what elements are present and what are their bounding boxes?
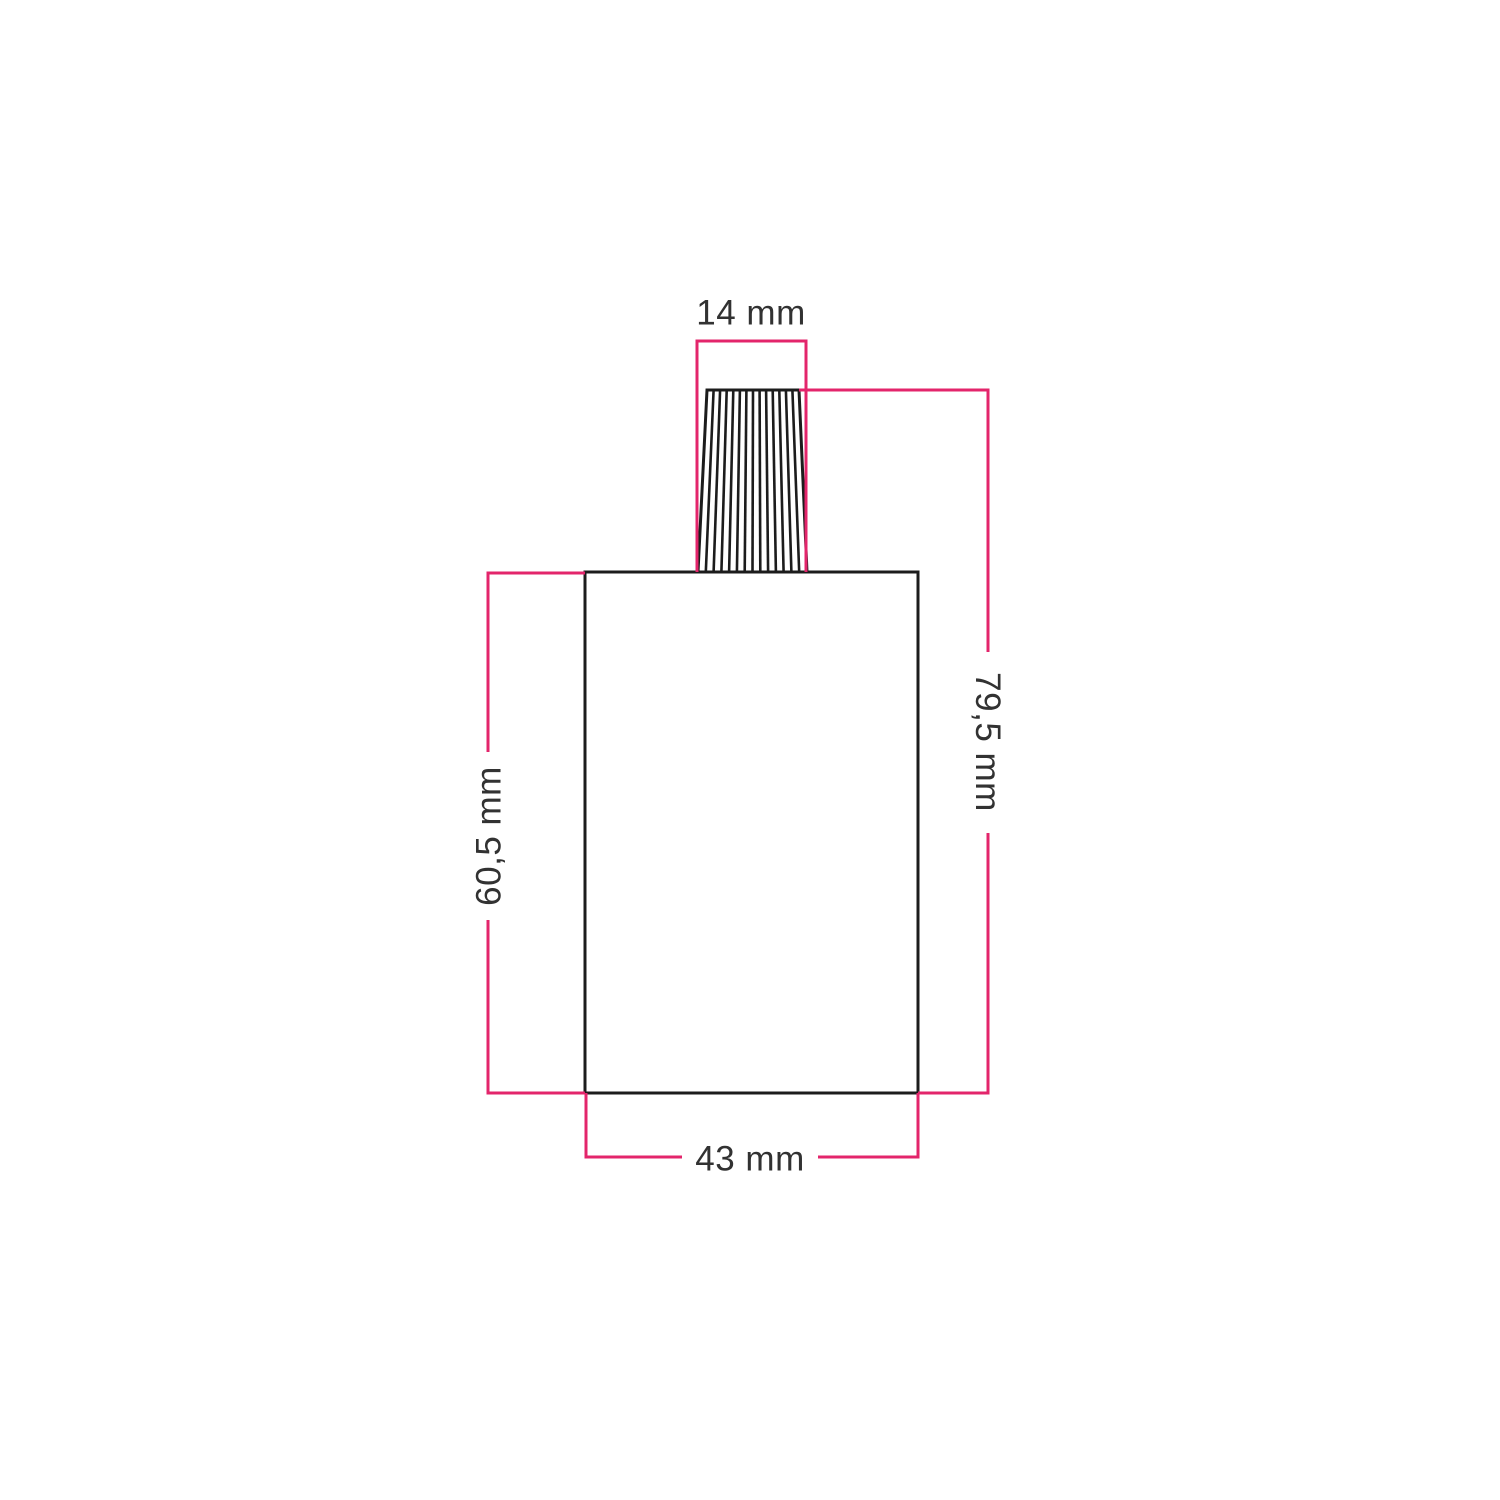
product-outline <box>585 390 918 1093</box>
dimension-total-height: 79,5 mm <box>799 390 1007 1093</box>
cable-grip-ribs <box>706 390 799 572</box>
lamp-holder-body <box>585 572 918 1093</box>
dimension-line-60mm-lower <box>488 920 585 1093</box>
dimension-line-43mm-right <box>818 1093 918 1157</box>
dimension-label-43mm: 43 mm <box>695 1139 804 1178</box>
dimension-body-height: 60,5 mm <box>469 573 585 1093</box>
dimension-line-43mm-left <box>586 1093 682 1157</box>
dimension-line-79mm-lower <box>918 833 988 1093</box>
technical-drawing-canvas: 14 mm 79,5 mm 60,5 mm 43 mm <box>0 0 1500 1500</box>
dimension-label-60mm: 60,5 mm <box>469 766 508 906</box>
dimension-drawing: 14 mm 79,5 mm 60,5 mm 43 mm <box>0 0 1500 1500</box>
dimension-label-14mm: 14 mm <box>696 293 805 332</box>
dimension-line-60mm-upper <box>488 573 585 752</box>
dimension-label-79mm: 79,5 mm <box>968 672 1007 812</box>
dimension-body-width: 43 mm <box>586 1093 918 1178</box>
dimension-line-79mm-upper <box>799 390 988 652</box>
